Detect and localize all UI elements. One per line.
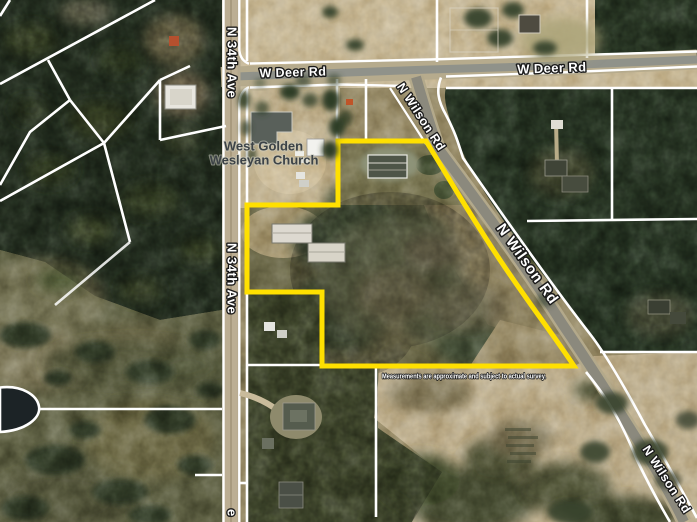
svg-text:N 34th Ave: N 34th Ave	[225, 243, 240, 314]
svg-text:Measurements are approximate a: Measurements are approximate and subject…	[382, 372, 546, 381]
svg-text:N 34th Ave: N 34th Ave	[225, 27, 240, 98]
svg-text:W Deer Rd: W Deer Rd	[259, 65, 326, 81]
svg-text:West Golden: West Golden	[224, 139, 303, 154]
svg-text:W Deer Rd: W Deer Rd	[517, 59, 587, 76]
svg-text:e: e	[225, 509, 240, 516]
svg-text:Wesleyan Church: Wesleyan Church	[210, 153, 319, 168]
